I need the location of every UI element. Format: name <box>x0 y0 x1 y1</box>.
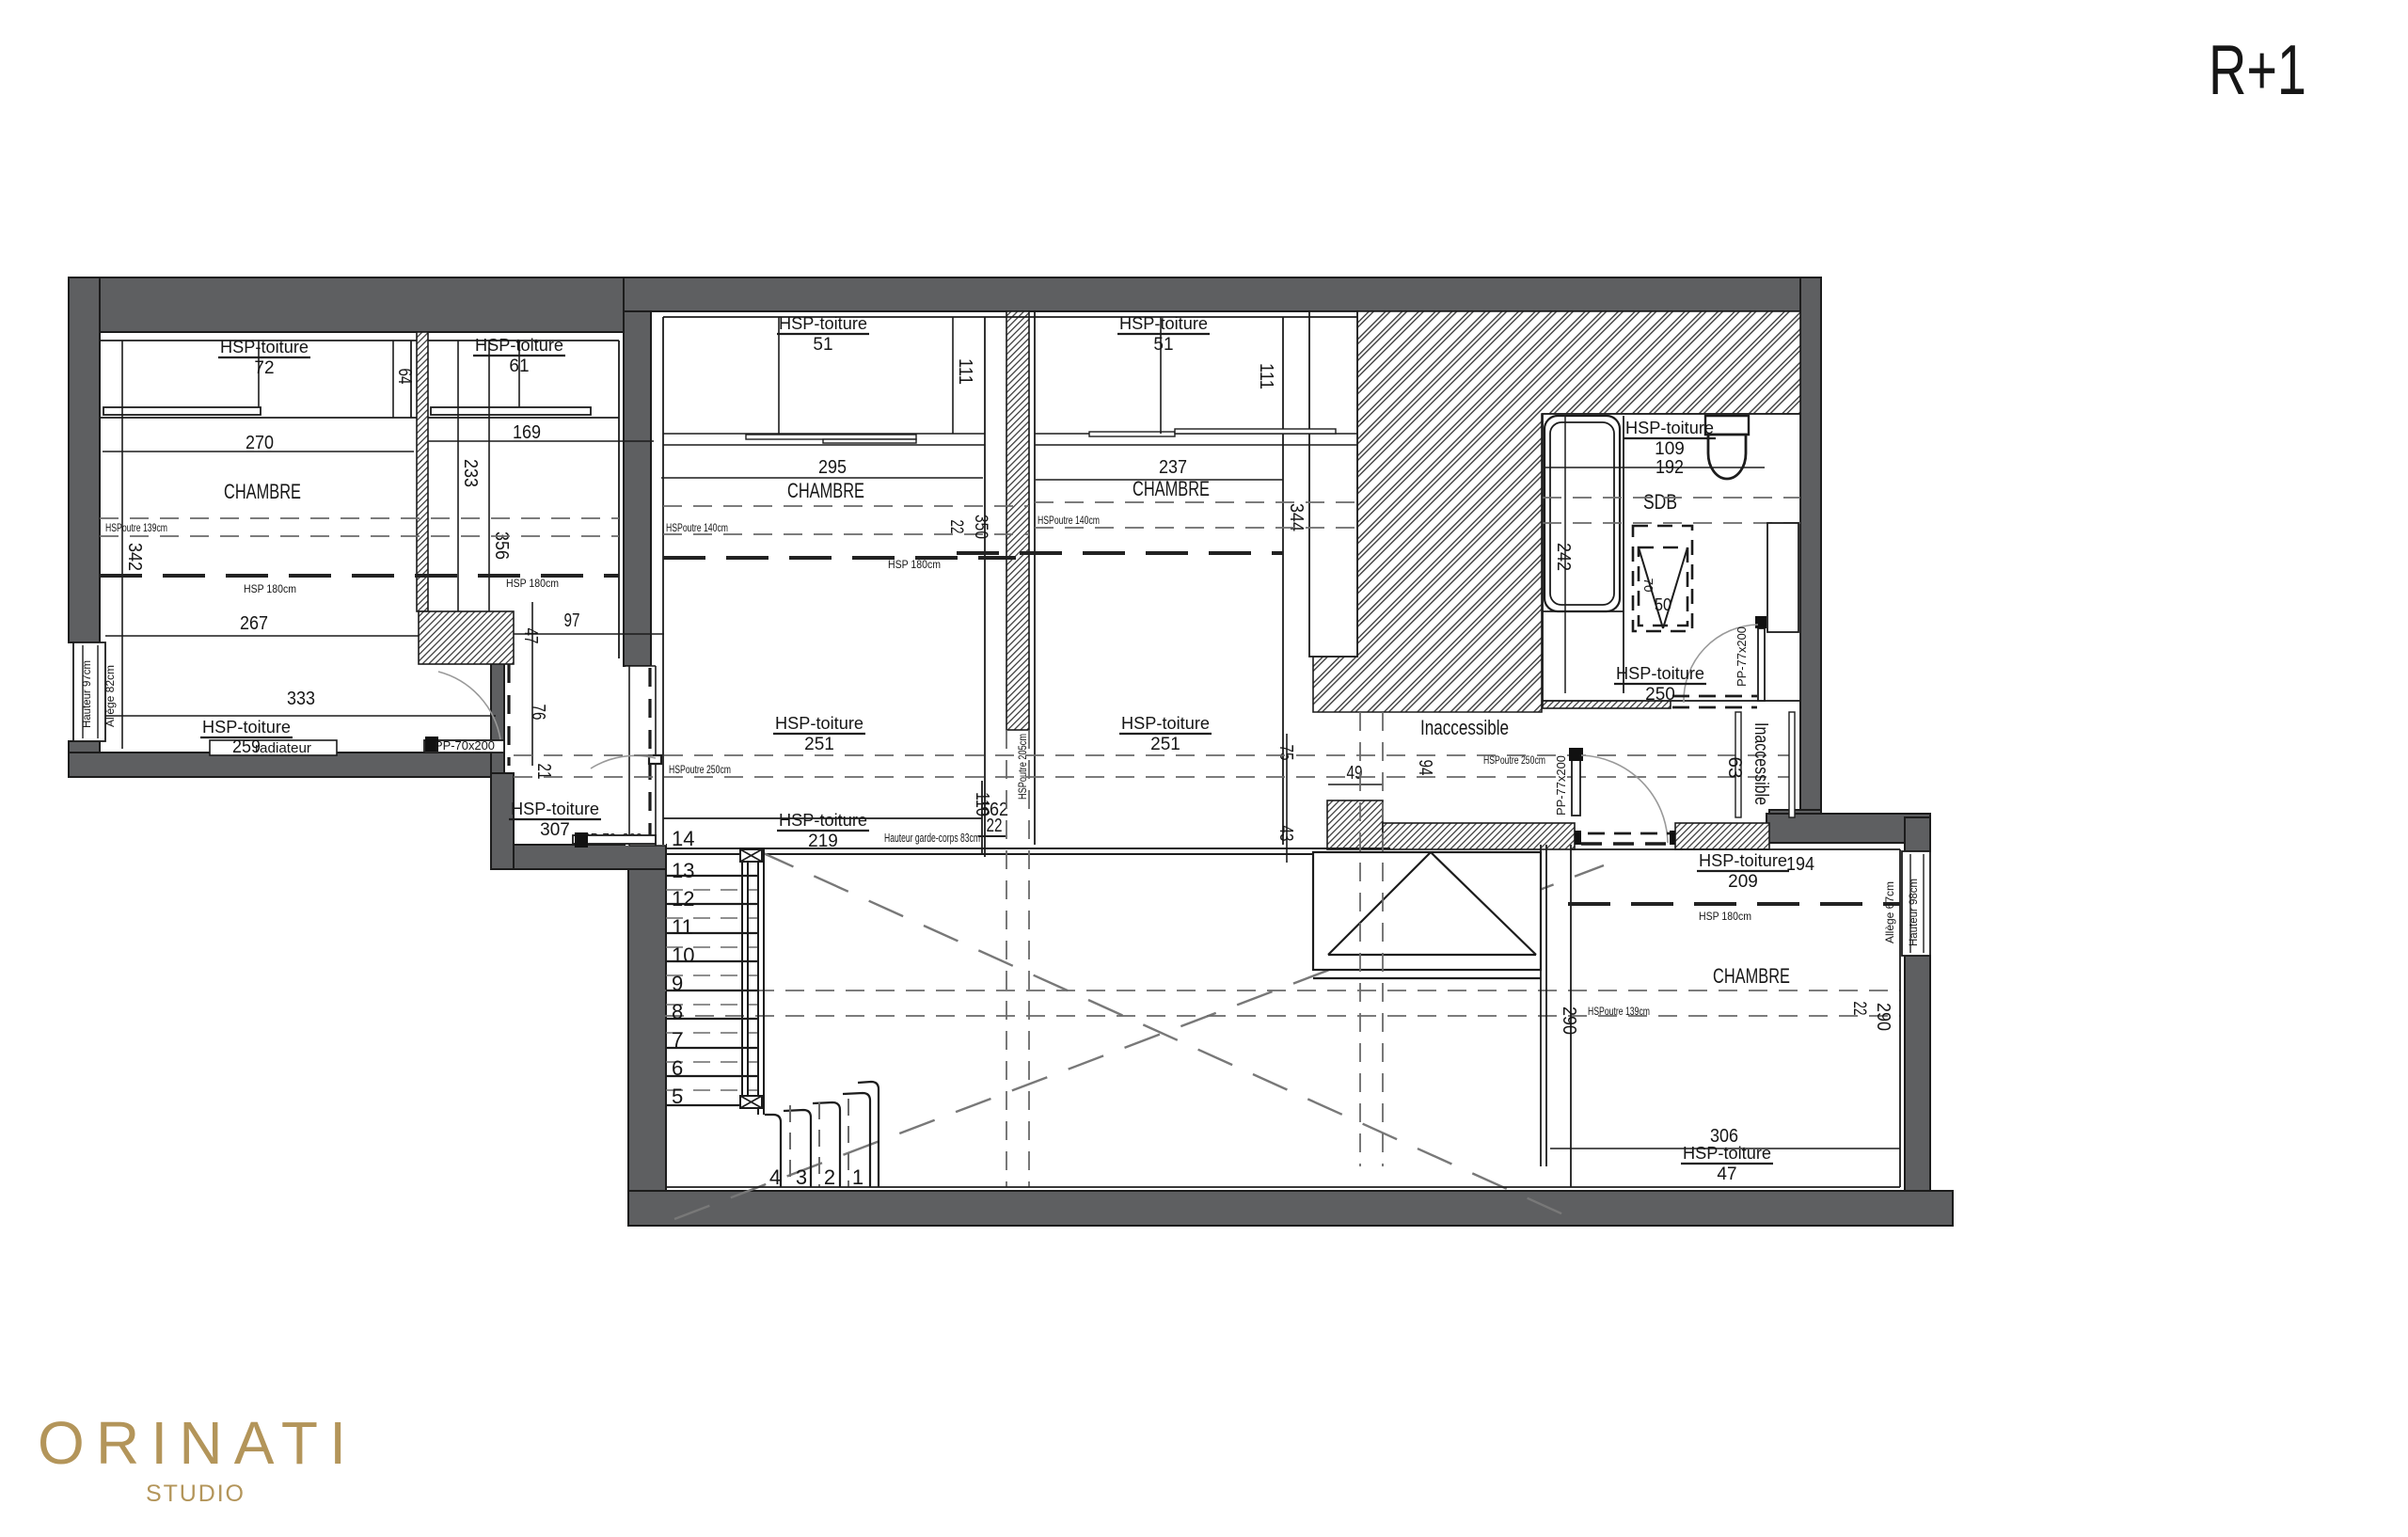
svg-text:72: 72 <box>254 358 274 378</box>
svg-text:43: 43 <box>1275 826 1296 842</box>
svg-text:HSPoutre 250cm: HSPoutre 250cm <box>669 763 731 776</box>
svg-text:109: 109 <box>1655 439 1685 459</box>
svg-text:13: 13 <box>672 859 694 882</box>
svg-text:HSPoutre 250cm: HSPoutre 250cm <box>1483 753 1545 767</box>
svg-text:8: 8 <box>672 1000 683 1023</box>
svg-text:290: 290 <box>1559 1006 1579 1035</box>
svg-text:Hauteur 97cm: Hauteur 97cm <box>80 660 93 728</box>
svg-text:10: 10 <box>672 943 694 967</box>
svg-text:209: 209 <box>1728 872 1758 892</box>
svg-text:HSP 180cm: HSP 180cm <box>888 558 941 571</box>
svg-text:SDB: SDB <box>1643 490 1677 514</box>
svg-text:Allège 67cm: Allège 67cm <box>1883 881 1896 943</box>
svg-text:64: 64 <box>394 369 415 385</box>
svg-text:9: 9 <box>672 972 683 995</box>
svg-text:242: 242 <box>1553 543 1574 571</box>
svg-text:R+1: R+1 <box>2209 30 2306 109</box>
svg-text:22: 22 <box>987 816 1003 836</box>
svg-text:HSP-toiture: HSP-toiture <box>1121 714 1210 733</box>
svg-text:111: 111 <box>1256 363 1276 389</box>
svg-text:HSP-toiture: HSP-toiture <box>511 800 599 818</box>
svg-text:237: 237 <box>1159 457 1187 478</box>
svg-text:CHAMBRE: CHAMBRE <box>224 480 301 503</box>
svg-text:HSPoutre 139cm: HSPoutre 139cm <box>1588 1005 1650 1018</box>
svg-text:94: 94 <box>1415 760 1435 776</box>
svg-text:51: 51 <box>1153 335 1173 355</box>
svg-text:5: 5 <box>672 1085 683 1108</box>
svg-text:97: 97 <box>564 610 580 631</box>
svg-text:342: 342 <box>124 543 145 571</box>
svg-text:HSP-toiture: HSP-toiture <box>1699 851 1787 870</box>
svg-text:PP-70x200: PP-70x200 <box>435 738 495 753</box>
svg-text:192: 192 <box>1655 457 1684 478</box>
svg-text:2: 2 <box>824 1165 835 1189</box>
svg-text:76: 76 <box>528 705 548 721</box>
svg-text:HSP 180cm: HSP 180cm <box>244 582 296 595</box>
svg-text:Hauteur 98cm: Hauteur 98cm <box>1907 879 1920 946</box>
svg-text:22: 22 <box>946 520 966 534</box>
svg-text:259: 259 <box>232 737 261 757</box>
svg-text:47: 47 <box>1717 1165 1736 1184</box>
svg-text:12: 12 <box>672 887 694 911</box>
svg-text:61: 61 <box>509 357 529 376</box>
svg-text:CHAMBRE: CHAMBRE <box>1133 477 1210 500</box>
svg-text:6: 6 <box>672 1056 683 1080</box>
svg-text:HSP-toiture: HSP-toiture <box>1119 314 1208 333</box>
svg-text:267: 267 <box>240 613 268 634</box>
svg-text:HSP 180cm: HSP 180cm <box>1699 910 1751 923</box>
svg-text:63: 63 <box>1724 757 1745 779</box>
svg-text:250: 250 <box>1645 685 1675 705</box>
svg-text:50: 50 <box>1655 595 1671 614</box>
svg-text:70: 70 <box>1641 578 1655 593</box>
svg-text:CHAMBRE: CHAMBRE <box>1713 964 1790 988</box>
svg-text:HSP 180cm: HSP 180cm <box>506 577 559 590</box>
svg-text:HSP-toiture: HSP-toiture <box>779 811 867 830</box>
svg-text:307: 307 <box>540 820 570 840</box>
svg-text:333: 333 <box>287 689 315 709</box>
svg-text:HSP-toiture: HSP-toiture <box>775 714 863 733</box>
svg-text:51: 51 <box>813 335 832 355</box>
svg-text:HSP-toiture: HSP-toiture <box>1616 664 1704 683</box>
svg-text:1: 1 <box>852 1165 863 1189</box>
svg-text:7: 7 <box>672 1028 683 1052</box>
svg-text:PP-77x200: PP-77x200 <box>1554 755 1568 816</box>
svg-text:194: 194 <box>1786 854 1814 875</box>
svg-text:233: 233 <box>460 459 481 487</box>
svg-text:251: 251 <box>1150 735 1180 754</box>
svg-text:STUDIO: STUDIO <box>146 1481 244 1507</box>
svg-text:Inaccessible: Inaccessible <box>1420 716 1509 739</box>
svg-text:350: 350 <box>971 515 990 539</box>
svg-text:HSP-toiture: HSP-toiture <box>220 338 309 357</box>
svg-text:111: 111 <box>955 358 975 385</box>
svg-text:HSPoutre 139cm: HSPoutre 139cm <box>105 521 167 534</box>
svg-text:270: 270 <box>246 433 274 453</box>
svg-text:4: 4 <box>769 1165 781 1189</box>
svg-text:Hauteur garde-corps 83cm: Hauteur garde-corps 83cm <box>884 831 980 845</box>
svg-text:HSPoutre 205cm: HSPoutre 205cm <box>1016 734 1029 800</box>
svg-text:169: 169 <box>513 422 541 443</box>
svg-text:47: 47 <box>520 628 541 644</box>
svg-text:295: 295 <box>818 457 847 478</box>
svg-text:ORINATI: ORINATI <box>38 1409 346 1477</box>
svg-text:HSP-toiture: HSP-toiture <box>1683 1144 1771 1163</box>
svg-text:75: 75 <box>1275 745 1296 761</box>
svg-text:CHAMBRE: CHAMBRE <box>787 479 864 502</box>
svg-text:radiateur: radiateur <box>255 740 311 756</box>
svg-text:11: 11 <box>672 915 693 939</box>
svg-text:HSPoutre 140cm: HSPoutre 140cm <box>666 521 728 534</box>
svg-text:251: 251 <box>804 735 834 754</box>
svg-text:22: 22 <box>1849 1002 1869 1016</box>
svg-text:HSP-toiture: HSP-toiture <box>1625 419 1714 437</box>
svg-text:HSP-toiture: HSP-toiture <box>779 314 867 333</box>
svg-text:Allège 82cm: Allège 82cm <box>103 665 117 727</box>
svg-text:290: 290 <box>1873 1003 1893 1031</box>
svg-text:3: 3 <box>796 1165 807 1189</box>
svg-text:HSP-toiture: HSP-toiture <box>202 718 291 737</box>
svg-text:HSP-toiture: HSP-toiture <box>475 336 563 355</box>
svg-text:PP-77x200: PP-77x200 <box>1735 626 1749 687</box>
svg-text:HSPoutre 140cm: HSPoutre 140cm <box>1038 514 1100 527</box>
svg-text:Inaccessible: Inaccessible <box>1751 722 1771 805</box>
svg-text:14: 14 <box>672 827 694 850</box>
